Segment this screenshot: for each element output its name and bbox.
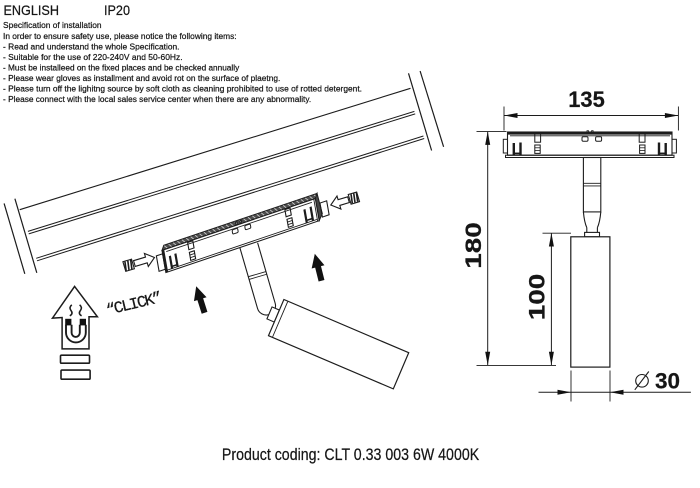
svg-text:ENGLISH: ENGLISH bbox=[4, 2, 60, 18]
svg-text:- Please wear gloves as instal: - Please wear gloves as installment and … bbox=[3, 73, 280, 83]
svg-text:- Read and understand the whol: - Read and understand the whole Specific… bbox=[3, 41, 180, 51]
svg-text:30: 30 bbox=[655, 369, 680, 394]
svg-text:In order to ensure safety use,: In order to ensure safety use, please no… bbox=[3, 31, 237, 41]
svg-text:Product coding: CLT 0.33 003 6: Product coding: CLT 0.33 003 6W 4000K bbox=[222, 446, 479, 464]
svg-text:- Must be installeed on the fi: - Must be installeed on the fixed places… bbox=[3, 62, 240, 72]
svg-text:Specification of installation: Specification of installation bbox=[3, 20, 102, 30]
svg-text:“CLICK”: “CLICK” bbox=[104, 289, 164, 320]
svg-text:- Suitable for the use of 220-: - Suitable for the use of 220-240V and 5… bbox=[3, 52, 183, 62]
svg-text:IP20: IP20 bbox=[104, 2, 130, 18]
svg-text:100: 100 bbox=[525, 274, 550, 321]
svg-text:180: 180 bbox=[461, 222, 486, 269]
svg-text:- Please turn off the lighitng: - Please turn off the lighitng source by… bbox=[3, 83, 362, 93]
svg-text:135: 135 bbox=[568, 87, 605, 112]
svg-text:- Please connect with the loca: - Please connect with the local sales se… bbox=[3, 94, 311, 104]
